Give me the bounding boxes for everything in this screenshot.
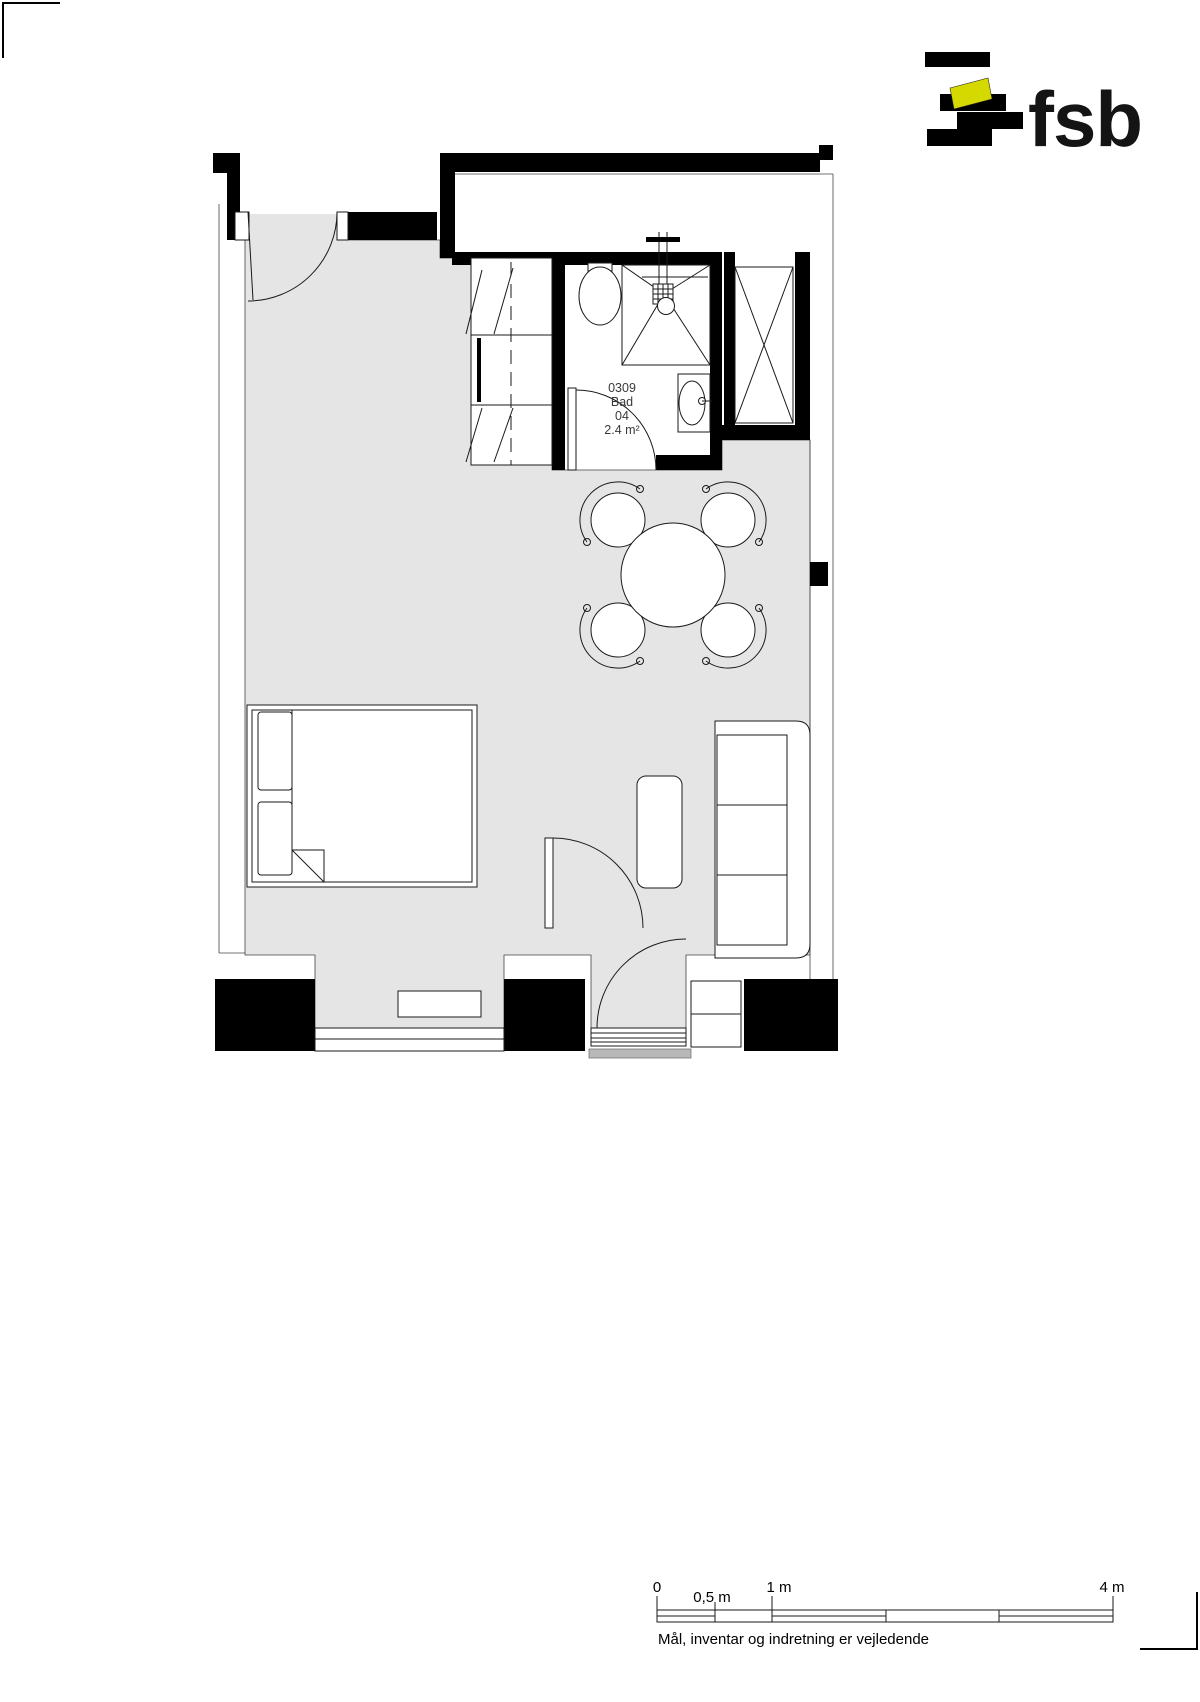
scale-bar: 0 0,5 m 1 m 4 m Mål, inventar og indretn…: [653, 1579, 1125, 1648]
scale-tick-0: 0: [653, 1579, 661, 1596]
window-sill: [398, 991, 481, 1017]
round-table: [621, 523, 725, 627]
room-number: 0309: [608, 381, 636, 395]
pillow: [258, 802, 292, 875]
door-jamb: [337, 212, 348, 240]
entry-doormat: [589, 1049, 691, 1058]
scale-tick-4: 4 m: [1099, 1579, 1124, 1596]
floor-plan-canvas: fsb: [0, 0, 1200, 1702]
shower-head-icon: [653, 284, 675, 315]
scale-tick-1: 1 m: [766, 1579, 791, 1596]
sofa: [715, 721, 810, 958]
sink: [678, 374, 712, 432]
room-name: Bad: [611, 395, 633, 409]
fsb-logo: fsb: [819, 52, 1142, 163]
entry-side-frame: [691, 981, 741, 1014]
scale-tick-05: 0,5 m: [693, 1589, 731, 1606]
door-leaf: [545, 838, 553, 928]
right-wall-tick: [810, 562, 828, 586]
toilet: [579, 263, 621, 325]
coffee-table: [637, 776, 682, 888]
door-leaf: [568, 388, 576, 470]
room-sub-number: 04: [615, 409, 629, 423]
shower: [622, 232, 710, 365]
bathroom: 0309 Bad 04 2.4 m²: [568, 232, 712, 470]
closet-unit: [466, 258, 552, 465]
room-area: 2.4 m²: [604, 423, 639, 437]
floor-doorway-patch: [248, 214, 337, 241]
scale-caption: Mål, inventar og indretning er vejledend…: [658, 1631, 929, 1648]
entry-threshold: [591, 1028, 686, 1046]
pillow: [258, 712, 292, 790]
fsb-logo-icon: [819, 52, 1023, 160]
bed: [247, 705, 477, 887]
logo-text: fsb: [1028, 75, 1142, 163]
corner-mark-bottom-right: [1140, 1592, 1198, 1650]
door-jamb: [235, 212, 249, 240]
wardrobe: [735, 267, 793, 423]
bathroom-label: 0309 Bad 04 2.4 m²: [604, 381, 639, 437]
entry-side-frame: [691, 1014, 741, 1047]
corner-mark-top-left: [2, 2, 60, 58]
